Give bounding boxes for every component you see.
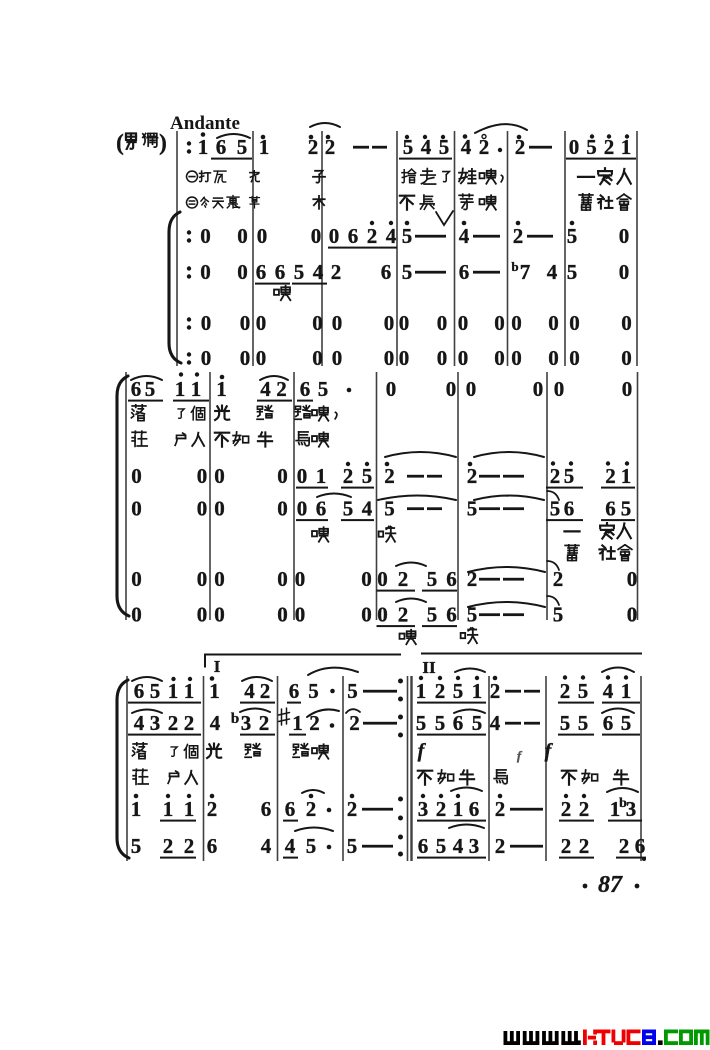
- svg-text:6: 6: [275, 260, 286, 284]
- svg-text:2: 2: [435, 679, 446, 703]
- svg-text:0: 0: [197, 603, 208, 627]
- svg-text:1: 1: [131, 797, 142, 821]
- svg-text:2: 2: [343, 464, 354, 488]
- svg-text:2: 2: [207, 797, 218, 821]
- svg-text:5: 5: [402, 224, 413, 248]
- svg-text:0: 0: [446, 377, 457, 401]
- svg-text:6: 6: [131, 377, 142, 401]
- svg-text:6: 6: [289, 679, 300, 703]
- svg-text:1: 1: [472, 679, 483, 703]
- svg-text:0: 0: [466, 377, 477, 401]
- svg-text:2: 2: [331, 260, 342, 284]
- svg-text:5: 5: [416, 711, 427, 735]
- svg-text:2: 2: [619, 834, 630, 858]
- svg-text:4: 4: [490, 711, 501, 735]
- svg-text:0: 0: [511, 346, 522, 370]
- svg-text:5: 5: [567, 224, 578, 248]
- svg-text:0: 0: [311, 224, 322, 248]
- svg-text:0: 0: [361, 603, 372, 627]
- svg-text:6: 6: [469, 797, 480, 821]
- svg-text:5: 5: [131, 834, 142, 858]
- svg-text:5: 5: [145, 377, 156, 401]
- svg-text:0: 0: [569, 311, 580, 335]
- svg-text:0: 0: [386, 377, 397, 401]
- svg-text:2: 2: [495, 797, 506, 821]
- svg-text:f: f: [545, 740, 554, 762]
- svg-text:2: 2: [398, 567, 409, 591]
- svg-text:7: 7: [520, 260, 531, 284]
- svg-text:(: (: [116, 130, 124, 155]
- svg-text:0: 0: [332, 346, 343, 370]
- svg-text:5: 5: [237, 135, 248, 159]
- svg-text:2: 2: [325, 135, 336, 159]
- svg-text:0: 0: [214, 567, 225, 591]
- svg-text:0: 0: [295, 603, 306, 627]
- svg-text:6: 6: [605, 497, 616, 521]
- svg-text:0: 0: [277, 497, 288, 521]
- svg-text:87: 87: [598, 872, 623, 898]
- svg-text:1: 1: [621, 679, 632, 703]
- svg-text:1: 1: [209, 679, 220, 703]
- svg-text:0: 0: [622, 377, 633, 401]
- svg-text:2: 2: [306, 797, 317, 821]
- svg-text:0: 0: [384, 311, 395, 335]
- svg-text:0: 0: [554, 377, 565, 401]
- svg-text:0: 0: [548, 346, 559, 370]
- svg-text:1: 1: [184, 679, 195, 703]
- svg-text:2: 2: [168, 711, 179, 735]
- svg-text:0: 0: [377, 603, 388, 627]
- svg-text:4: 4: [362, 497, 373, 521]
- svg-text:0: 0: [214, 603, 225, 627]
- svg-text:2: 2: [259, 711, 270, 735]
- svg-text:4: 4: [459, 224, 470, 248]
- svg-text:0: 0: [214, 464, 225, 488]
- svg-text:0: 0: [569, 135, 580, 159]
- svg-text:2: 2: [561, 834, 572, 858]
- svg-text:0: 0: [437, 311, 448, 335]
- svg-text:5: 5: [564, 464, 575, 488]
- svg-text:5: 5: [318, 377, 329, 401]
- svg-text:0: 0: [256, 346, 267, 370]
- svg-text:5: 5: [567, 260, 578, 284]
- svg-text:5: 5: [436, 834, 447, 858]
- svg-text:5: 5: [453, 679, 464, 703]
- svg-text:1: 1: [175, 377, 186, 401]
- svg-text:1: 1: [292, 711, 303, 735]
- svg-text:6: 6: [453, 711, 464, 735]
- svg-text:0: 0: [131, 497, 142, 521]
- svg-text:1: 1: [168, 679, 179, 703]
- svg-text:0: 0: [511, 311, 522, 335]
- svg-text:6: 6: [381, 260, 392, 284]
- svg-text:5: 5: [362, 464, 373, 488]
- svg-text:0: 0: [548, 311, 559, 335]
- svg-text:1: 1: [163, 797, 174, 821]
- svg-text:b: b: [511, 259, 518, 274]
- svg-text:0: 0: [277, 464, 288, 488]
- svg-text:6: 6: [418, 834, 429, 858]
- svg-text:0: 0: [240, 311, 251, 335]
- svg-text:2: 2: [347, 797, 358, 821]
- svg-text:5: 5: [435, 711, 446, 735]
- svg-text:1: 1: [198, 135, 209, 159]
- svg-text:1: 1: [316, 464, 327, 488]
- svg-text:0: 0: [329, 224, 340, 248]
- svg-text:2: 2: [398, 603, 409, 627]
- svg-text:): ): [159, 130, 167, 155]
- svg-text:0: 0: [437, 346, 448, 370]
- svg-text:2: 2: [349, 711, 360, 735]
- svg-text:0: 0: [621, 346, 632, 370]
- svg-text:6: 6: [348, 224, 359, 248]
- svg-text:2: 2: [384, 464, 395, 488]
- svg-text:5: 5: [347, 834, 358, 858]
- svg-text:6: 6: [261, 797, 272, 821]
- svg-text:0: 0: [237, 224, 248, 248]
- svg-text:2: 2: [605, 464, 616, 488]
- svg-text:5: 5: [308, 679, 319, 703]
- svg-text:0: 0: [399, 346, 410, 370]
- svg-text:0: 0: [197, 497, 208, 521]
- svg-text:0: 0: [131, 603, 142, 627]
- svg-text:6: 6: [285, 797, 296, 821]
- svg-text:4: 4: [461, 135, 472, 159]
- svg-text:0: 0: [131, 567, 142, 591]
- svg-text:6: 6: [635, 834, 646, 858]
- svg-text:0: 0: [312, 311, 323, 335]
- svg-text:II: II: [422, 658, 436, 677]
- svg-text:4: 4: [313, 260, 324, 284]
- svg-text:0: 0: [256, 311, 267, 335]
- svg-text:0: 0: [277, 567, 288, 591]
- svg-text:2: 2: [513, 224, 524, 248]
- svg-text:6: 6: [316, 497, 327, 521]
- svg-text:1: 1: [453, 797, 464, 821]
- svg-text:5: 5: [550, 497, 561, 521]
- svg-text:1: 1: [416, 679, 427, 703]
- svg-text:4: 4: [261, 834, 272, 858]
- svg-text:f: f: [517, 748, 523, 763]
- svg-text:2: 2: [163, 834, 174, 858]
- svg-text:3: 3: [150, 711, 161, 735]
- svg-text:0: 0: [201, 346, 212, 370]
- svg-text:2: 2: [579, 834, 590, 858]
- svg-text:b: b: [231, 711, 239, 727]
- svg-text:0: 0: [458, 311, 469, 335]
- svg-text:2: 2: [467, 464, 478, 488]
- svg-text:2: 2: [553, 567, 564, 591]
- svg-text:Andante: Andante: [170, 113, 240, 134]
- svg-text:0: 0: [533, 377, 544, 401]
- svg-text:4: 4: [547, 260, 558, 284]
- svg-text:0: 0: [197, 567, 208, 591]
- svg-text:0: 0: [332, 311, 343, 335]
- svg-text:2: 2: [579, 797, 590, 821]
- svg-text:0: 0: [257, 224, 268, 248]
- svg-text:2: 2: [184, 834, 195, 858]
- svg-text:3: 3: [241, 711, 252, 735]
- svg-text:0: 0: [295, 567, 306, 591]
- svg-text:5: 5: [472, 711, 483, 735]
- svg-text:0: 0: [494, 346, 505, 370]
- svg-text:3: 3: [626, 797, 637, 821]
- svg-text:1: 1: [621, 135, 632, 159]
- svg-text:2: 2: [561, 797, 572, 821]
- svg-text:2: 2: [495, 834, 506, 858]
- svg-text:0: 0: [361, 567, 372, 591]
- svg-text:5: 5: [427, 603, 438, 627]
- svg-text:5: 5: [621, 497, 632, 521]
- svg-text:3: 3: [418, 797, 429, 821]
- svg-text:5: 5: [560, 711, 571, 735]
- svg-text:2: 2: [490, 679, 501, 703]
- svg-text:5: 5: [306, 834, 317, 858]
- svg-text:2: 2: [308, 135, 319, 159]
- svg-text:4: 4: [260, 377, 271, 401]
- svg-text:0: 0: [197, 464, 208, 488]
- svg-text:6: 6: [603, 711, 614, 735]
- svg-text:6: 6: [134, 679, 145, 703]
- svg-text:f: f: [418, 740, 427, 762]
- svg-text:5: 5: [347, 679, 358, 703]
- svg-text:4: 4: [453, 834, 464, 858]
- svg-text:0: 0: [312, 346, 323, 370]
- svg-text:4: 4: [210, 711, 221, 735]
- svg-text:2: 2: [260, 679, 271, 703]
- svg-text:5: 5: [553, 603, 564, 627]
- svg-text:0: 0: [494, 311, 505, 335]
- svg-text:0: 0: [214, 497, 225, 521]
- svg-text:1: 1: [621, 464, 632, 488]
- svg-text:0: 0: [621, 311, 632, 335]
- svg-text:2: 2: [436, 797, 447, 821]
- svg-text:5: 5: [621, 711, 632, 735]
- svg-text:0: 0: [619, 260, 630, 284]
- svg-text:I: I: [214, 657, 221, 676]
- svg-text:0: 0: [297, 464, 308, 488]
- svg-text:6: 6: [256, 260, 267, 284]
- svg-text:4: 4: [285, 834, 296, 858]
- svg-text:3: 3: [469, 834, 480, 858]
- svg-text:0: 0: [277, 603, 288, 627]
- svg-text:2: 2: [184, 711, 195, 735]
- svg-text:6: 6: [446, 567, 457, 591]
- svg-text:4: 4: [244, 679, 255, 703]
- svg-text:0: 0: [569, 346, 580, 370]
- svg-text:6: 6: [446, 603, 457, 627]
- svg-text:0: 0: [240, 346, 251, 370]
- svg-text:0: 0: [131, 464, 142, 488]
- svg-text:0: 0: [619, 224, 630, 248]
- svg-text:6: 6: [207, 834, 218, 858]
- svg-text:0: 0: [377, 567, 388, 591]
- svg-text:2: 2: [276, 377, 287, 401]
- svg-text:0: 0: [458, 346, 469, 370]
- svg-text:4: 4: [386, 224, 397, 248]
- svg-text:5: 5: [343, 497, 354, 521]
- svg-text:1: 1: [216, 377, 227, 401]
- svg-text:1: 1: [184, 797, 195, 821]
- svg-text:5: 5: [294, 260, 305, 284]
- svg-text:0: 0: [237, 260, 248, 284]
- svg-text:2: 2: [367, 224, 378, 248]
- svg-text:4: 4: [134, 711, 145, 735]
- svg-text:5: 5: [150, 679, 161, 703]
- svg-text:6: 6: [564, 497, 575, 521]
- svg-text:5: 5: [578, 679, 589, 703]
- svg-text:0: 0: [384, 346, 395, 370]
- svg-text:2: 2: [550, 464, 561, 488]
- svg-text:5: 5: [402, 260, 413, 284]
- svg-text:0: 0: [200, 224, 211, 248]
- svg-text:0: 0: [297, 497, 308, 521]
- svg-text:0: 0: [201, 311, 212, 335]
- svg-text:0: 0: [399, 311, 410, 335]
- svg-text:2: 2: [560, 679, 571, 703]
- svg-text:0: 0: [200, 260, 211, 284]
- svg-text:5: 5: [384, 497, 395, 521]
- svg-text:6: 6: [459, 260, 470, 284]
- svg-text:5: 5: [578, 711, 589, 735]
- svg-text:1: 1: [191, 377, 202, 401]
- svg-text:0: 0: [627, 603, 638, 627]
- svg-text:5: 5: [427, 567, 438, 591]
- svg-text:0: 0: [627, 567, 638, 591]
- svg-text:6: 6: [300, 377, 311, 401]
- svg-text:4: 4: [603, 679, 614, 703]
